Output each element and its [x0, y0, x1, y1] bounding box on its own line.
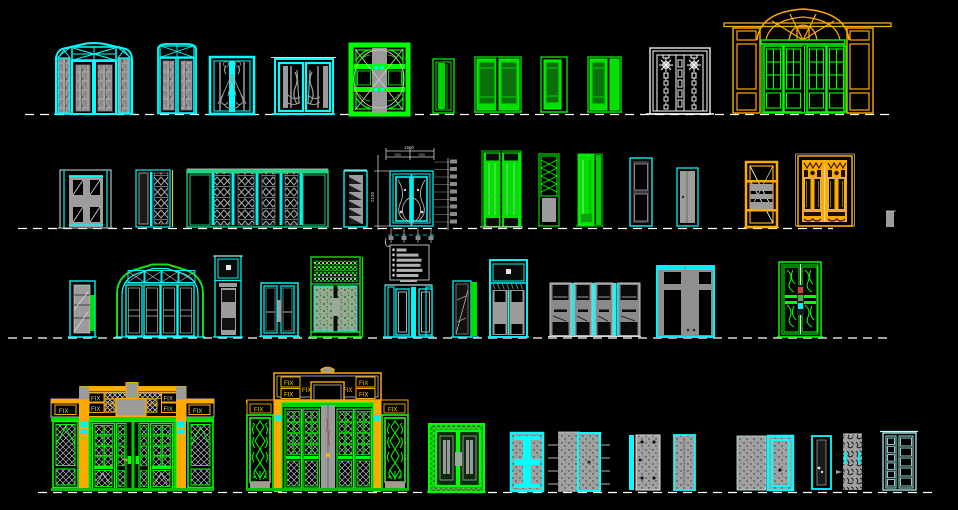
svg-text:2150: 2150	[370, 191, 375, 202]
svg-text:FIX: FIX	[359, 381, 368, 387]
svg-text:FIX: FIX	[91, 407, 100, 413]
svg-text:700: 700	[394, 152, 401, 157]
svg-text:FIX: FIX	[164, 407, 173, 413]
svg-text:FIX: FIX	[150, 402, 159, 408]
svg-text:1500: 1500	[404, 145, 415, 150]
svg-text:FIX: FIX	[106, 402, 115, 408]
svg-text:FIX: FIX	[388, 408, 397, 414]
svg-text:FIX: FIX	[302, 388, 311, 394]
svg-text:FIX: FIX	[284, 393, 293, 399]
svg-text:FIX: FIX	[284, 381, 293, 387]
svg-text:700: 700	[418, 152, 425, 157]
svg-text:FIX: FIX	[164, 397, 173, 403]
svg-text:FIX: FIX	[59, 409, 68, 415]
svg-text:FIX: FIX	[91, 397, 100, 403]
svg-text:FIX: FIX	[193, 409, 202, 415]
svg-text:FIX: FIX	[359, 393, 368, 399]
svg-text:FIX: FIX	[254, 408, 263, 414]
